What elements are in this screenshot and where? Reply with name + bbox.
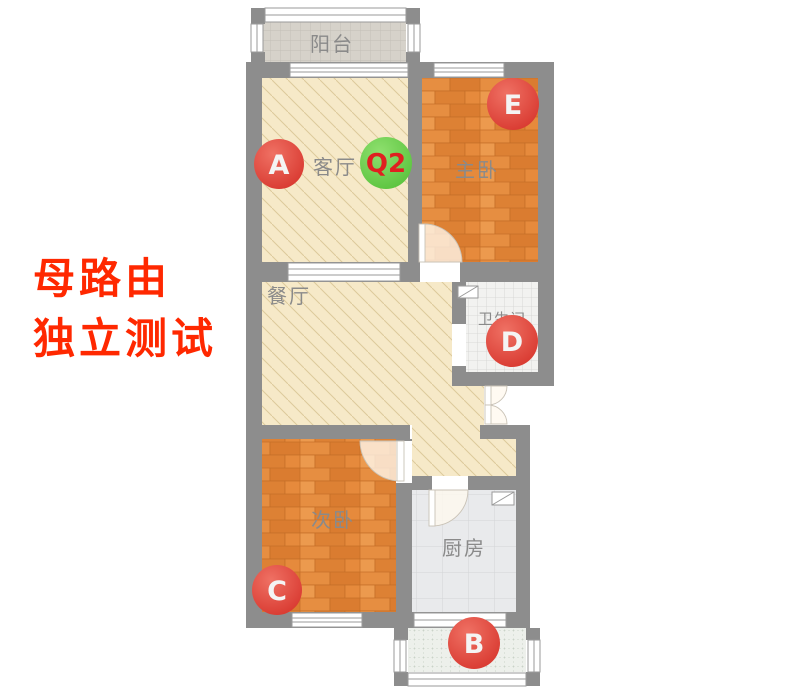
annotation-line2: 独立测试: [33, 314, 217, 363]
bedroom2-door-leaf: [397, 441, 404, 481]
marker-d: D: [486, 315, 538, 367]
entry-door-leaf-top: [485, 386, 491, 405]
kitchen-label: 厨房: [442, 536, 486, 560]
window-master: [434, 63, 504, 77]
marker-c: C: [252, 565, 302, 615]
marker-d-label: D: [501, 327, 523, 358]
pass-living-dining: [288, 263, 400, 281]
dining-floor-ext: [452, 386, 484, 425]
kitchen-door-leaf: [429, 490, 435, 526]
floor-plan: 阳台 客厅 主卧 餐厅 卫生间 次卧 厨房 A Q2 E D C: [0, 0, 800, 693]
entry-door-leaf-bottom: [485, 405, 491, 424]
opening-kitchen-door: [432, 476, 468, 490]
master-door-leaf: [419, 224, 425, 262]
floor-plan-page: 阳台 客厅 主卧 餐厅 卫生间 次卧 厨房 A Q2 E D C: [0, 0, 800, 693]
window-bedroom2: [292, 613, 362, 627]
marker-q2-label: Q2: [366, 149, 406, 179]
marker-e-label: E: [504, 90, 522, 121]
opening-bathroom-door: [452, 324, 466, 366]
opening-master-door: [420, 262, 460, 282]
marker-e: E: [487, 78, 539, 130]
marker-b-label: B: [464, 629, 485, 660]
living-room-label: 客厅: [313, 155, 357, 179]
bedroom2-label: 次卧: [311, 508, 355, 532]
marker-a-label: A: [269, 150, 290, 181]
small-window-kitchen: [492, 492, 514, 505]
balcony-top-label: 阳台: [310, 32, 354, 56]
dining-room-label: 餐厅: [267, 284, 311, 308]
marker-a: A: [254, 139, 304, 189]
annotation-text: 母路由 独立测试: [33, 254, 217, 363]
marker-q2: Q2: [360, 137, 412, 189]
annotation-line1: 母路由: [33, 254, 171, 303]
window-living: [290, 63, 408, 77]
master-bedroom-label: 主卧: [455, 158, 499, 182]
marker-c-label: C: [267, 576, 287, 607]
marker-b: B: [448, 617, 500, 669]
small-window-bathroom: [458, 286, 478, 298]
